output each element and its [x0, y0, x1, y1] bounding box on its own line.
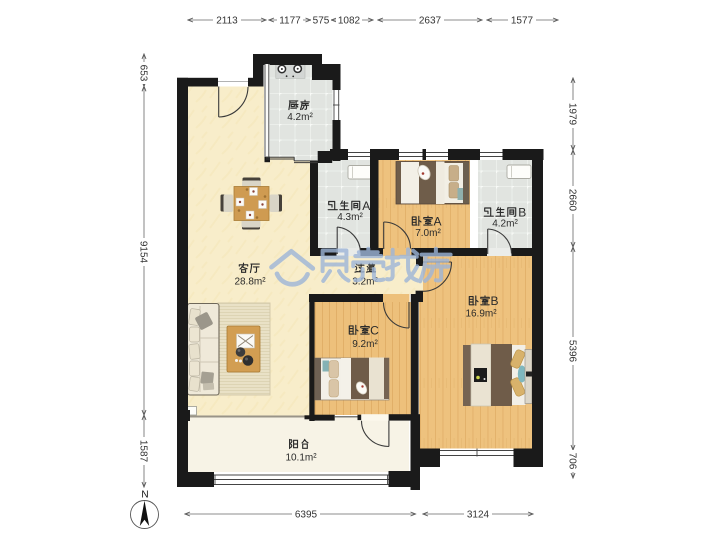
svg-text:653: 653 [138, 65, 149, 82]
svg-text:575: 575 [313, 16, 330, 27]
svg-text:N: N [141, 490, 148, 501]
svg-text:2637: 2637 [419, 16, 442, 27]
svg-text:1082: 1082 [338, 16, 361, 27]
svg-text:4.2m²: 4.2m² [492, 219, 518, 230]
svg-text:28.8m²: 28.8m² [234, 277, 266, 288]
svg-text:1979: 1979 [567, 103, 578, 126]
svg-text:7.0m²: 7.0m² [415, 228, 441, 239]
svg-text:2660: 2660 [567, 189, 578, 212]
svg-text:4.3m²: 4.3m² [337, 212, 363, 223]
svg-text:16.9m²: 16.9m² [465, 309, 497, 320]
svg-text:706: 706 [567, 453, 578, 470]
svg-text:10.1m²: 10.1m² [285, 453, 317, 464]
svg-text:4.2m²: 4.2m² [287, 112, 313, 123]
svg-text:9154: 9154 [138, 241, 149, 264]
svg-text:3124: 3124 [467, 510, 490, 521]
svg-text:1587: 1587 [138, 440, 149, 463]
svg-text:C: C [370, 323, 379, 337]
svg-text:A: A [433, 214, 441, 228]
svg-text:A: A [362, 199, 370, 213]
svg-text:1177: 1177 [279, 16, 301, 27]
svg-text:5396: 5396 [567, 340, 578, 363]
svg-text:2113: 2113 [216, 16, 238, 27]
svg-text:9.2m²: 9.2m² [352, 339, 378, 350]
svg-text:1577: 1577 [511, 16, 534, 27]
svg-text:6395: 6395 [295, 510, 318, 521]
svg-text:B: B [518, 205, 526, 219]
svg-text:B: B [490, 294, 498, 308]
